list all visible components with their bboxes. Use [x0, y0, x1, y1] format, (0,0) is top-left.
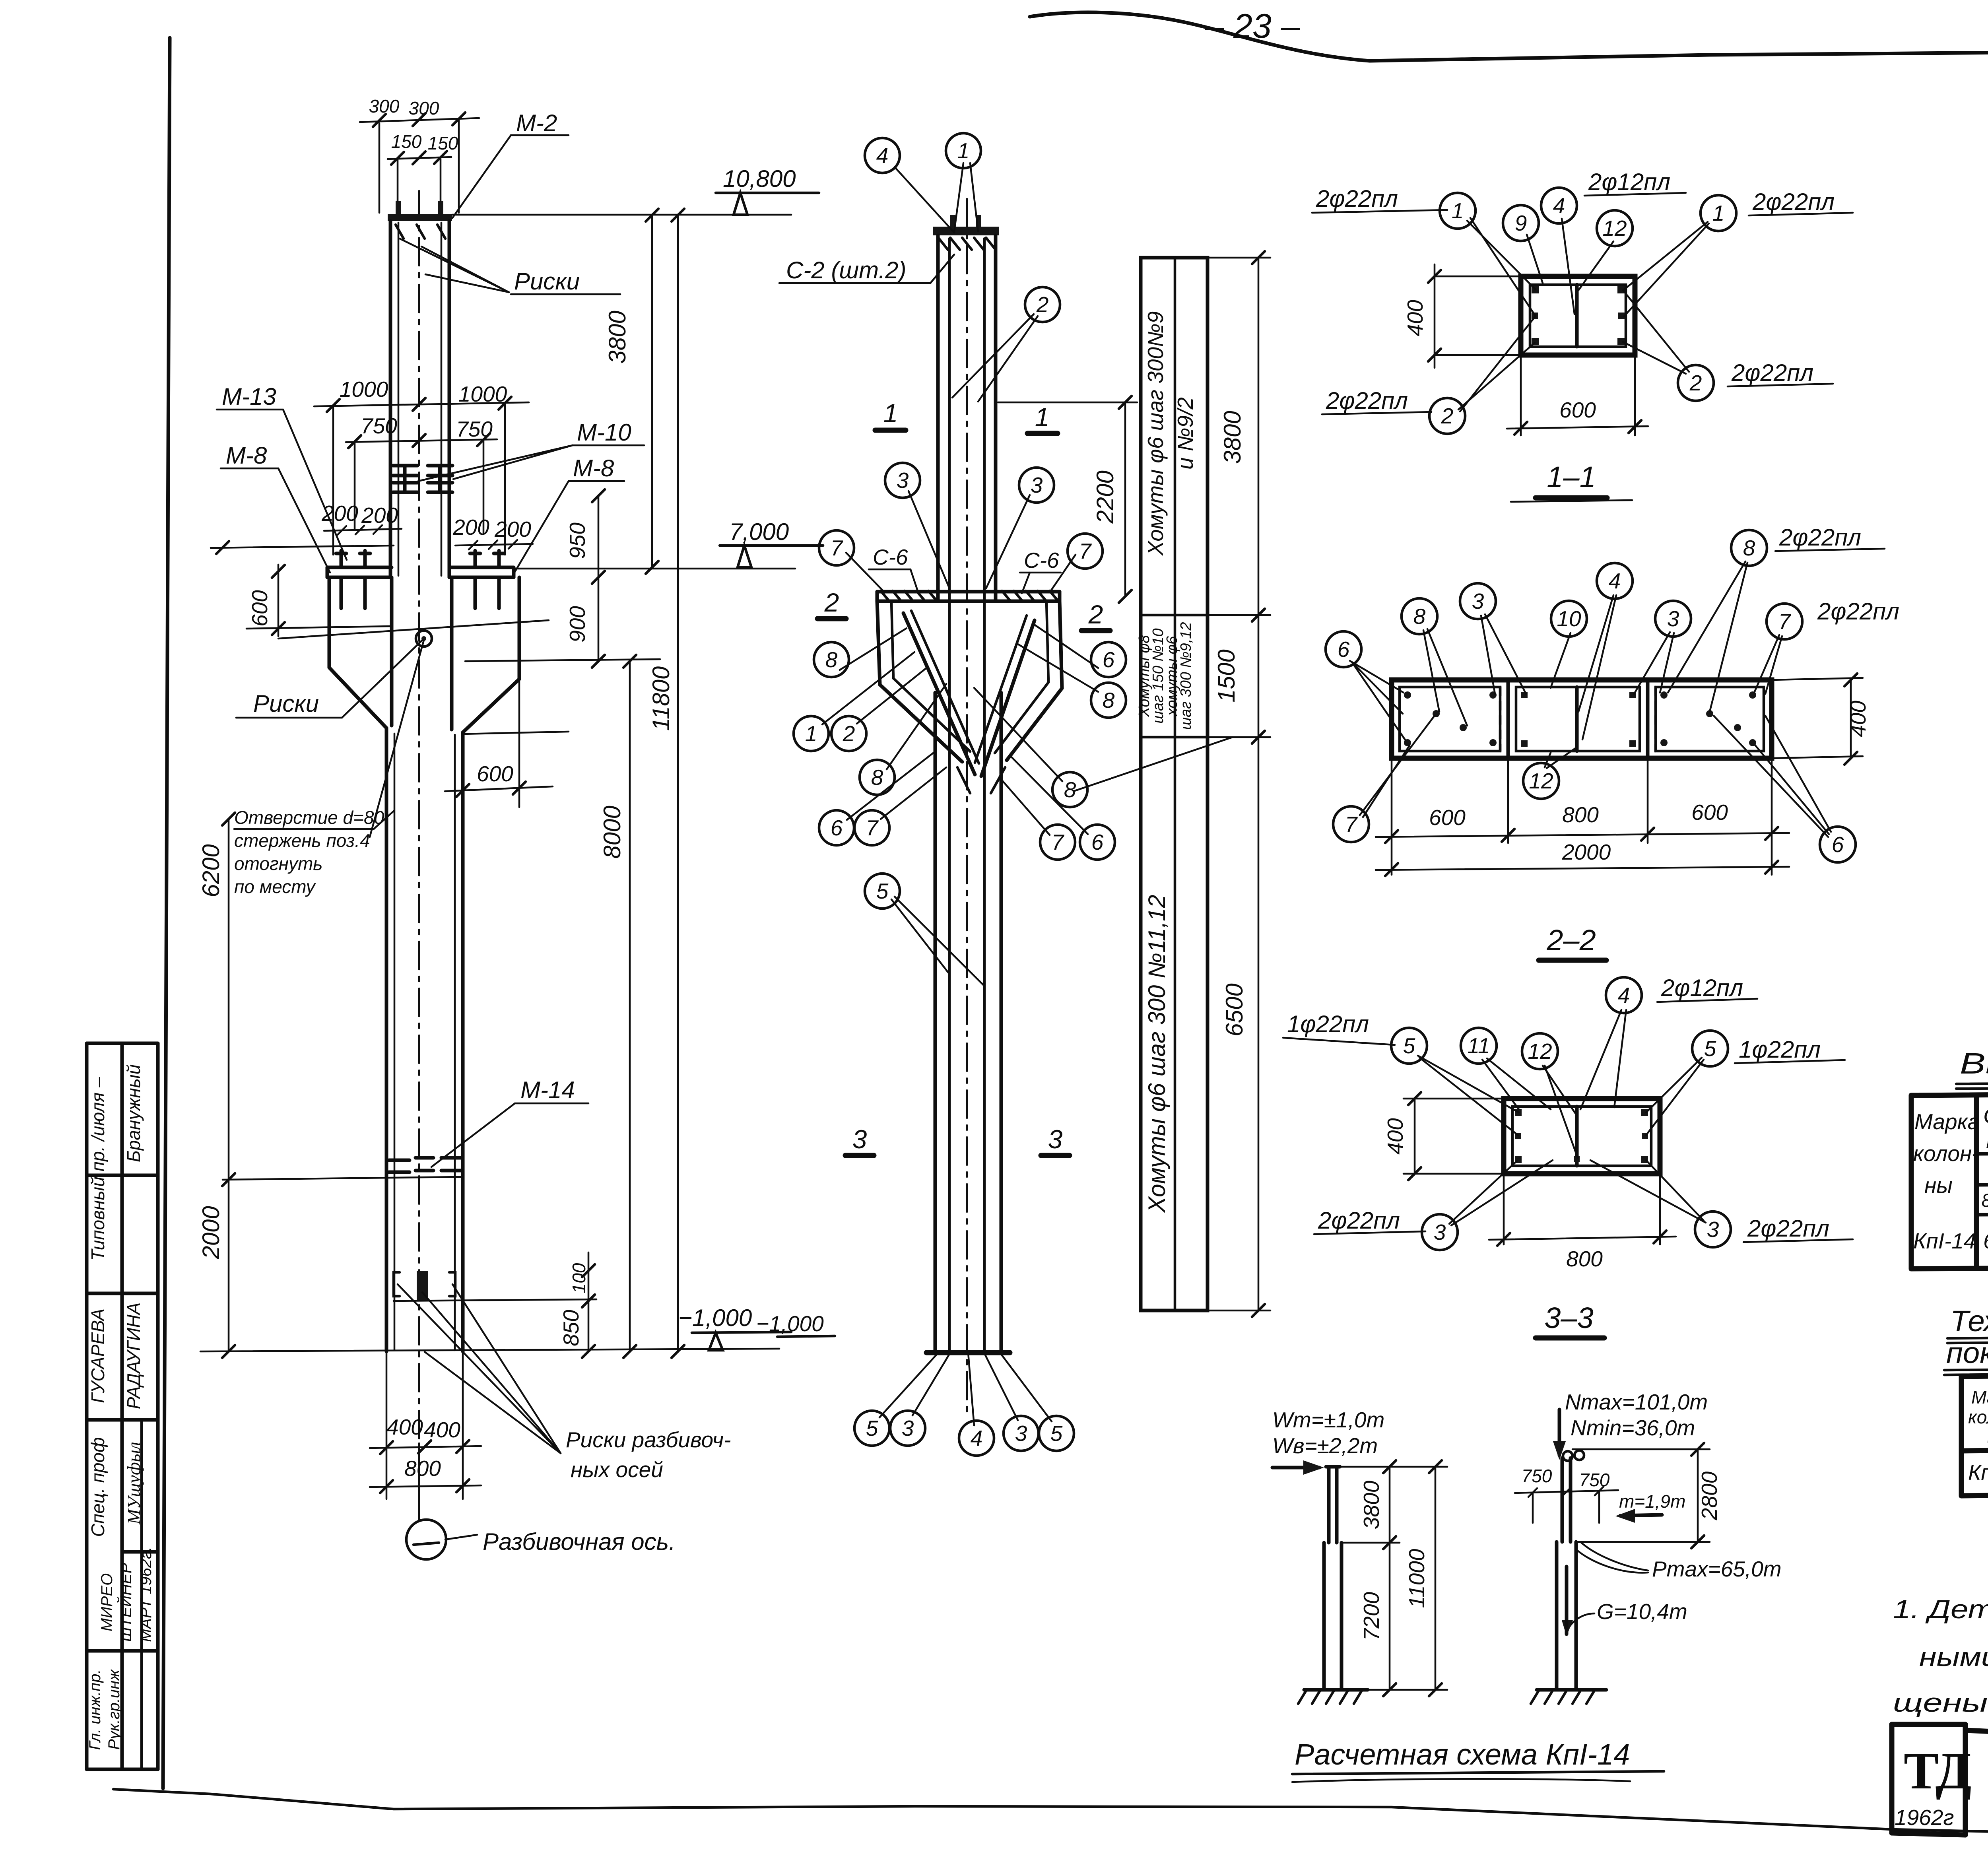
- svg-text:3: 3: [1031, 473, 1043, 497]
- svg-text:Wв=±2,2т: Wв=±2,2т: [1272, 1433, 1378, 1458]
- svg-text:3: 3: [1015, 1421, 1027, 1446]
- svg-text:КпI-14: КпI-14: [1968, 1460, 1988, 1485]
- svg-text:7: 7: [1052, 830, 1065, 854]
- svg-text:отогнуть: отогнуть: [234, 853, 322, 874]
- svg-text:150: 150: [391, 131, 422, 152]
- svg-text:600: 600: [1559, 398, 1596, 422]
- svg-text:3: 3: [1048, 1124, 1063, 1154]
- svg-text:200: 200: [494, 517, 531, 542]
- svg-text:−1,000: −1,000: [756, 1311, 824, 1336]
- svg-text:РАДАУГИНА: РАДАУГИНА: [123, 1303, 144, 1409]
- svg-text:4: 4: [1618, 983, 1630, 1008]
- svg-text:колон-: колон-: [1968, 1407, 1988, 1427]
- svg-text:3: 3: [897, 468, 909, 493]
- svg-text:3: 3: [1667, 606, 1679, 631]
- svg-text:6: 6: [1103, 647, 1115, 672]
- svg-text:10: 10: [1557, 606, 1581, 631]
- svg-text:7: 7: [1778, 609, 1792, 634]
- svg-text:3800: 3800: [604, 311, 631, 363]
- svg-text:G=10,4т: G=10,4т: [1597, 1599, 1687, 1624]
- svg-text:2: 2: [824, 588, 839, 617]
- svg-text:4: 4: [1609, 569, 1621, 593]
- svg-text:2φ12пл: 2φ12пл: [1661, 975, 1743, 1001]
- svg-text:6: 6: [1832, 832, 1844, 857]
- svg-text:8: 8: [1064, 777, 1076, 802]
- svg-text:Хомуты φ6 шаг 300 №11,12: Хомуты φ6 шаг 300 №11,12: [1143, 895, 1170, 1213]
- svg-text:М-8: М-8: [226, 442, 267, 469]
- svg-text:−1,000: −1,000: [678, 1305, 752, 1331]
- svg-text:Nmax=101,0т: Nmax=101,0т: [1565, 1390, 1708, 1414]
- svg-text:800: 800: [1566, 1246, 1603, 1271]
- svg-text:11000: 11000: [1404, 1549, 1429, 1608]
- svg-text:8000: 8000: [599, 806, 625, 858]
- svg-text:М-2: М-2: [516, 110, 557, 136]
- svg-text:8: 8: [871, 765, 883, 790]
- svg-text:900: 900: [565, 606, 590, 643]
- svg-text:200: 200: [452, 515, 489, 540]
- svg-text:Сталь класса А-III: Сталь класса А-III: [1983, 1103, 1988, 1128]
- svg-text:2800: 2800: [1697, 1471, 1722, 1520]
- svg-text:400: 400: [1846, 701, 1870, 737]
- svg-text:2φ22пл: 2φ22пл: [1817, 598, 1899, 625]
- svg-text:6: 6: [831, 815, 843, 840]
- svg-text:6,2: 6,2: [1983, 1229, 1988, 1253]
- svg-text:750: 750: [361, 414, 397, 438]
- svg-text:колон-: колон-: [1913, 1141, 1979, 1166]
- svg-text:7,000: 7,000: [729, 518, 789, 545]
- svg-text:Марка: Марка: [1914, 1109, 1980, 1134]
- svg-text:1: 1: [1452, 198, 1464, 223]
- svg-text:5: 5: [866, 1416, 878, 1441]
- svg-text:2: 2: [1441, 404, 1454, 428]
- svg-text:– 23 –: – 23 –: [1204, 7, 1300, 45]
- svg-text:Технико - экономические: Технико - экономические: [1950, 1305, 1988, 1338]
- svg-text:Типовный пр. /июля –: Типовный пр. /июля –: [87, 1077, 108, 1261]
- svg-text:ными элементами поме-: ными элементами поме-: [1919, 1642, 1988, 1672]
- svg-text:1. Детали колонн с заклад-: 1. Детали колонн с заклад-: [1893, 1594, 1988, 1624]
- svg-text:11: 11: [1467, 1033, 1490, 1058]
- svg-text:по месту: по месту: [234, 876, 316, 897]
- svg-text:3: 3: [902, 1416, 914, 1441]
- svg-text:Pmax=65,0т: Pmax=65,0т: [1652, 1557, 1782, 1581]
- svg-text:1000: 1000: [340, 377, 388, 402]
- svg-text:3: 3: [1707, 1217, 1719, 1242]
- svg-text:800: 800: [404, 1456, 441, 1481]
- svg-text:5: 5: [1403, 1033, 1415, 1058]
- svg-text:400: 400: [424, 1417, 460, 1442]
- svg-text:2–2: 2–2: [1546, 924, 1596, 957]
- svg-text:МИРЕО: МИРЕО: [98, 1573, 116, 1631]
- svg-text:7: 7: [831, 536, 844, 560]
- svg-text:2φ22пл: 2φ22пл: [1326, 387, 1408, 414]
- svg-text:2φ22пл: 2φ22пл: [1731, 359, 1813, 386]
- svg-text:6: 6: [1338, 637, 1350, 662]
- svg-text:2000: 2000: [1562, 840, 1611, 864]
- svg-text:Wт=±1,0т: Wт=±1,0т: [1272, 1408, 1384, 1432]
- svg-text:600: 600: [1691, 800, 1728, 825]
- svg-text:400: 400: [1403, 300, 1427, 336]
- svg-text:7200: 7200: [1359, 1592, 1384, 1641]
- svg-text:Бранужный: Бранужный: [123, 1064, 144, 1162]
- svg-text:3800: 3800: [1219, 411, 1246, 464]
- svg-text:ных осей: ных осей: [571, 1457, 663, 1482]
- svg-text:1: 1: [883, 398, 898, 428]
- svg-text:2200: 2200: [1092, 470, 1118, 524]
- svg-text:2: 2: [1088, 600, 1103, 629]
- svg-text:12: 12: [1529, 769, 1553, 793]
- svg-text:600: 600: [247, 590, 272, 627]
- svg-text:Марка: Марка: [1971, 1387, 1988, 1408]
- svg-text:2φ22пл: 2φ22пл: [1316, 185, 1398, 212]
- svg-text:400: 400: [1383, 1118, 1408, 1155]
- svg-text:7: 7: [1345, 812, 1358, 837]
- svg-text:Спец. проф: Спец. проф: [87, 1437, 108, 1537]
- svg-text:1500: 1500: [1213, 649, 1240, 702]
- svg-text:М-14: М-14: [520, 1077, 575, 1103]
- svg-text:8пл: 8пл: [1982, 1190, 1988, 1211]
- svg-text:Риски: Риски: [514, 268, 580, 295]
- svg-text:2: 2: [1689, 371, 1702, 395]
- svg-text:9: 9: [1515, 211, 1527, 235]
- svg-text:3: 3: [1472, 589, 1484, 613]
- svg-text:10,800: 10,800: [723, 165, 796, 192]
- svg-text:2: 2: [843, 721, 855, 746]
- svg-text:5: 5: [1050, 1421, 1063, 1446]
- svg-text:200: 200: [361, 503, 398, 528]
- svg-text:8: 8: [1103, 688, 1115, 713]
- svg-text:2: 2: [1036, 292, 1049, 317]
- svg-text:7: 7: [866, 815, 879, 840]
- svg-text:М-8: М-8: [573, 455, 614, 481]
- svg-text:Риски: Риски: [253, 690, 319, 717]
- svg-text:2φ22пл: 2φ22пл: [1747, 1215, 1829, 1242]
- svg-text:1: 1: [805, 721, 817, 746]
- svg-text:150: 150: [428, 133, 458, 153]
- svg-text:Отверстие d=80: Отверстие d=80: [234, 807, 384, 828]
- svg-text:С-2 (шт.2): С-2 (шт.2): [786, 257, 906, 283]
- svg-text:Рук.гр.инж: Рук.гр.инж: [105, 1669, 123, 1750]
- svg-text:Риски разбивоч-: Риски разбивоч-: [566, 1427, 731, 1452]
- svg-text:3800: 3800: [1359, 1480, 1384, 1529]
- svg-text:100: 100: [569, 1263, 589, 1293]
- svg-text:600: 600: [1429, 805, 1466, 830]
- svg-text:С-6: С-6: [1024, 548, 1059, 573]
- svg-text:1: 1: [957, 138, 970, 163]
- svg-text:950: 950: [565, 522, 590, 559]
- svg-text:5: 5: [876, 879, 889, 903]
- svg-text:1: 1: [1035, 402, 1050, 432]
- svg-text:Nmin=36,0т: Nmin=36,0т: [1571, 1415, 1695, 1440]
- svg-text:ГУСАРЕВА: ГУСАРЕВА: [87, 1309, 108, 1403]
- svg-text:600: 600: [477, 761, 513, 786]
- svg-text:по Гост 5781-61: по Гост 5781-61: [1986, 1128, 1988, 1153]
- svg-text:Выборка стали на одну колонну: Выборка стали на одну колонну (кг): [1960, 1047, 1988, 1080]
- svg-text:ШТЕЙНЕР: ШТЕЙНЕР: [116, 1563, 135, 1642]
- svg-text:КпI-14: КпI-14: [1913, 1229, 1976, 1253]
- svg-text:800: 800: [1562, 802, 1599, 827]
- svg-text:2φ22пл: 2φ22пл: [1752, 188, 1835, 215]
- svg-text:7: 7: [1079, 539, 1092, 563]
- svg-text:ны: ны: [1924, 1173, 1953, 1198]
- svg-text:показатели на однуколонну: показатели на однуколонну: [1946, 1336, 1988, 1369]
- svg-text:200: 200: [321, 501, 358, 526]
- svg-text:1962г: 1962г: [1895, 1805, 1954, 1830]
- svg-text:щены на листе 39.: щены на листе 39.: [1893, 1688, 1988, 1717]
- svg-text:1–1: 1–1: [1547, 460, 1596, 493]
- svg-text:3: 3: [1434, 1220, 1446, 1244]
- svg-text:3: 3: [852, 1124, 867, 1154]
- svg-text:1φ22пл: 1φ22пл: [1739, 1036, 1821, 1063]
- svg-text:шаг 300 №9,12: шаг 300 №9,12: [1178, 622, 1194, 730]
- svg-text:400: 400: [386, 1415, 423, 1439]
- svg-text:6500: 6500: [1221, 983, 1248, 1036]
- svg-text:8: 8: [1413, 604, 1426, 629]
- svg-text:стержень поз.4: стержень поз.4: [234, 830, 370, 851]
- svg-text:850: 850: [559, 1310, 583, 1346]
- svg-text:6200: 6200: [198, 844, 224, 897]
- svg-text:2φ22пл: 2φ22пл: [1779, 524, 1861, 551]
- svg-text:4: 4: [1553, 193, 1565, 218]
- svg-text:6: 6: [1091, 830, 1104, 854]
- svg-text:т=1,9т: т=1,9т: [1619, 1491, 1685, 1512]
- svg-text:С-6: С-6: [873, 545, 908, 569]
- svg-text:8: 8: [825, 647, 838, 672]
- svg-text:Расчетная схема КпI-14: Расчетная схема КпI-14: [1295, 1738, 1630, 1771]
- svg-text:МАРТ 1962г.: МАРТ 1962г.: [137, 1547, 155, 1642]
- svg-text:ТД: ТД: [1904, 1741, 1972, 1800]
- svg-text:1φ22пл: 1φ22пл: [1287, 1011, 1369, 1037]
- svg-text:Хомуты φ6 шаг 300№9: Хомуты φ6 шаг 300№9: [1143, 311, 1168, 557]
- svg-text:М-13: М-13: [222, 383, 276, 410]
- svg-text:1: 1: [1712, 201, 1725, 225]
- svg-text:4: 4: [876, 143, 889, 168]
- svg-text:Гл. инж.пр.: Гл. инж.пр.: [86, 1669, 104, 1750]
- svg-text:300: 300: [369, 96, 400, 116]
- svg-text:12: 12: [1602, 216, 1627, 241]
- svg-text:2φ12пл: 2φ12пл: [1588, 169, 1670, 195]
- svg-text:4: 4: [971, 1426, 983, 1450]
- svg-text:750: 750: [1579, 1470, 1610, 1490]
- svg-text:и №9/2: и №9/2: [1173, 397, 1198, 470]
- svg-text:Разбивочная ось.: Разбивочная ось.: [483, 1528, 676, 1555]
- svg-text:8: 8: [1743, 536, 1755, 560]
- svg-text:11800: 11800: [648, 666, 674, 731]
- svg-text:2000: 2000: [198, 1206, 224, 1259]
- svg-text:2φ22пл: 2φ22пл: [1318, 1207, 1400, 1234]
- svg-text:750: 750: [1522, 1466, 1552, 1486]
- svg-text:М-10: М-10: [577, 419, 631, 446]
- svg-text:12: 12: [1528, 1039, 1552, 1064]
- svg-text:3–3: 3–3: [1544, 1301, 1593, 1334]
- svg-text:5: 5: [1704, 1036, 1716, 1061]
